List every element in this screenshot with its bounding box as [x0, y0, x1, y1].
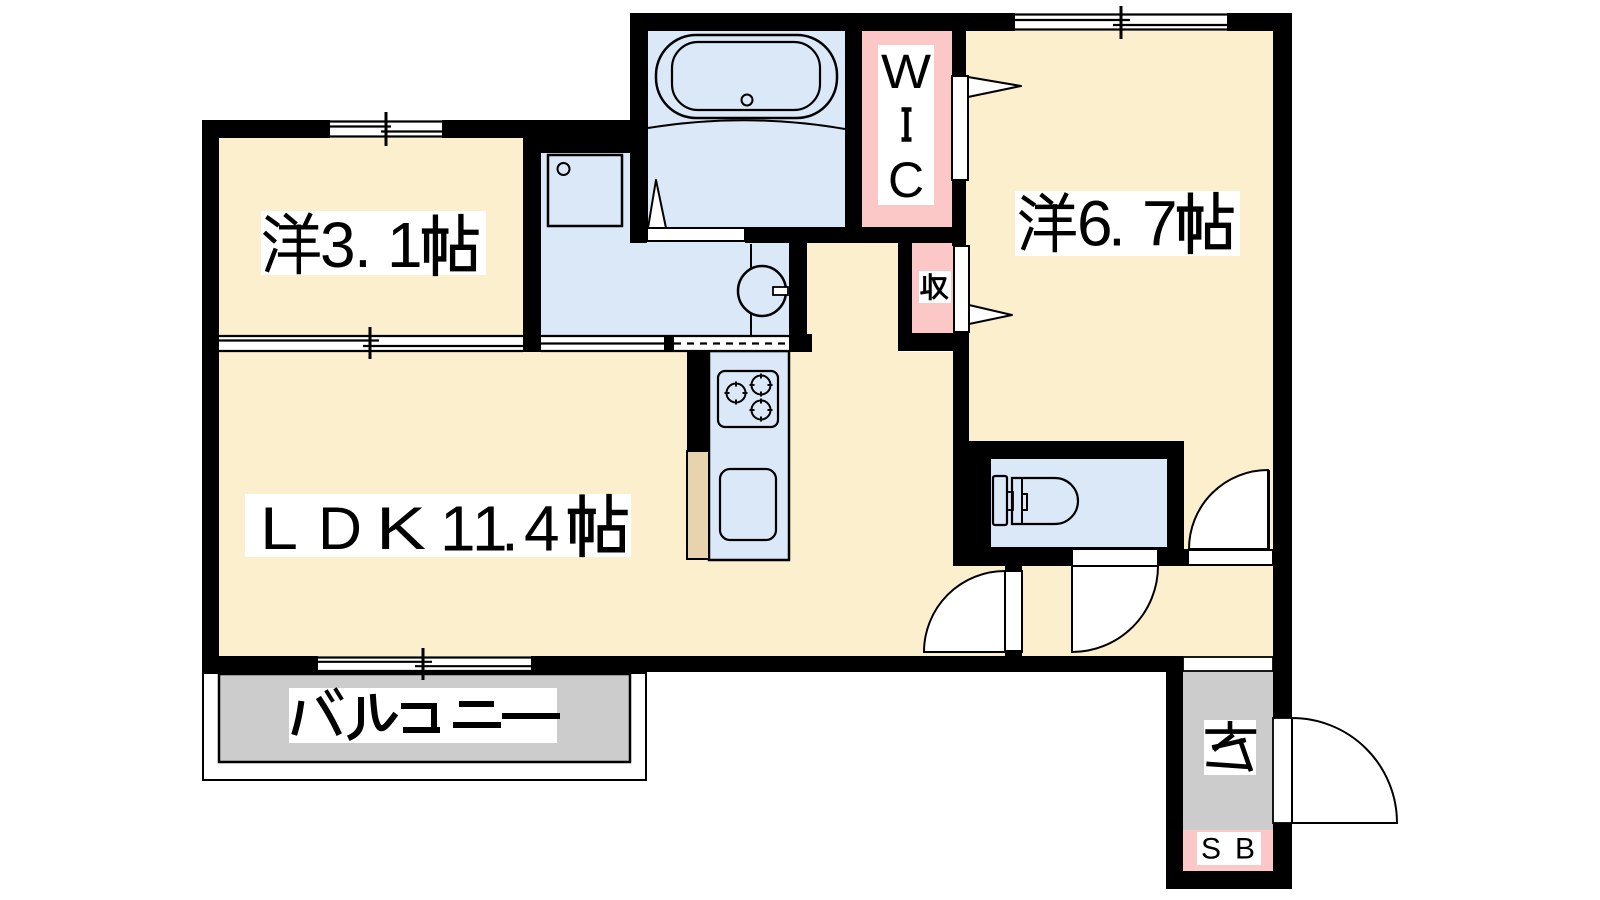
svg-text:.: .: [501, 493, 519, 565]
svg-text:K: K: [376, 495, 426, 562]
svg-text:3: 3: [320, 209, 356, 281]
svg-text:W: W: [881, 46, 932, 99]
svg-text:C: C: [888, 152, 924, 208]
svg-text:1: 1: [387, 209, 423, 281]
svg-text:.: .: [1108, 188, 1126, 260]
svg-text:B: B: [1235, 833, 1255, 866]
svg-text:.: .: [354, 209, 372, 281]
svg-text:D: D: [318, 495, 362, 562]
svg-text:1: 1: [440, 493, 476, 565]
svg-text:L: L: [260, 495, 298, 562]
svg-text:S: S: [1201, 833, 1221, 866]
svg-text:4: 4: [524, 493, 560, 565]
svg-text:7: 7: [1142, 188, 1178, 260]
